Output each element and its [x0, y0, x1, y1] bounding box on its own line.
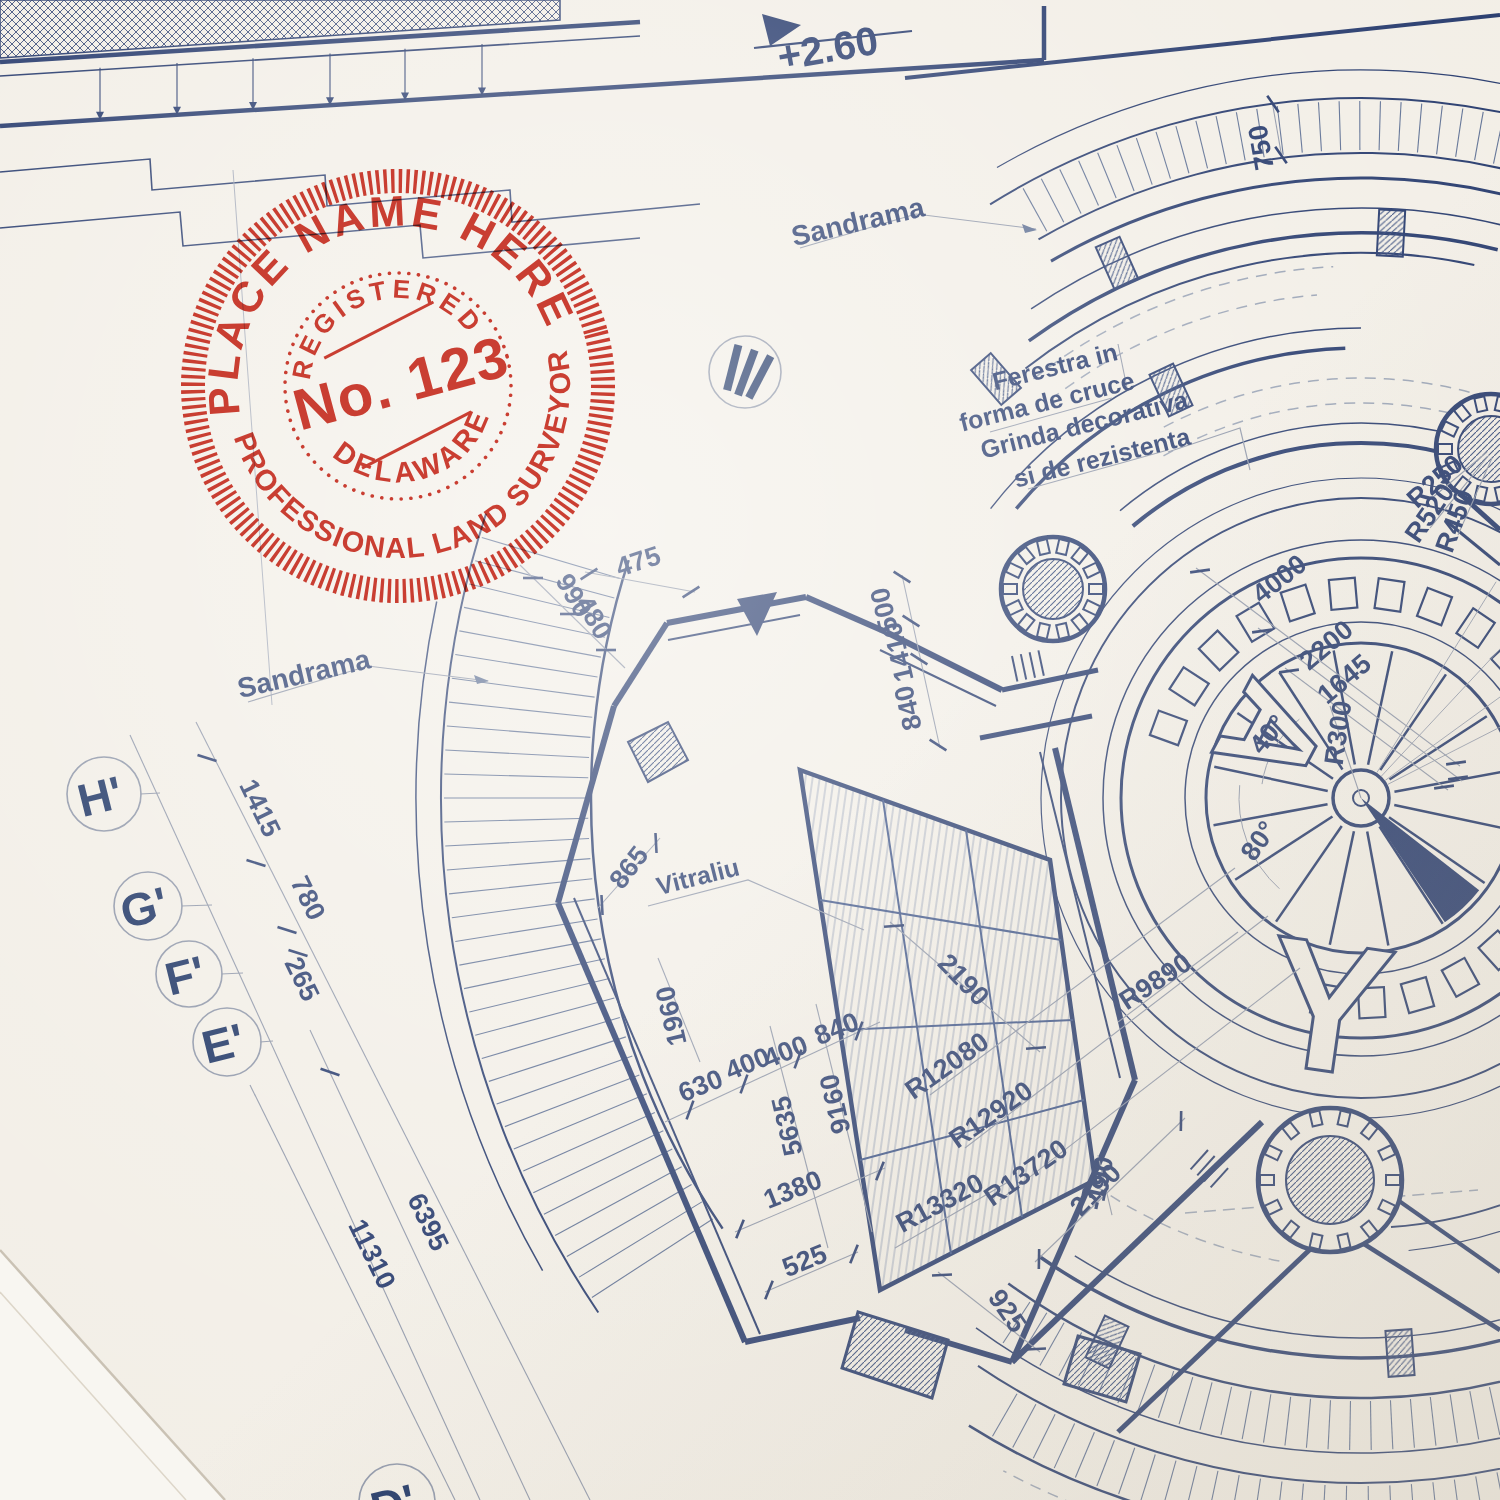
- shade-overlay: [0, 0, 1500, 1500]
- blueprint-photo: +2.60 AY H' G' F' E': [0, 0, 1500, 1500]
- blueprint-canvas: +2.60 AY H' G' F' E': [0, 0, 1500, 1500]
